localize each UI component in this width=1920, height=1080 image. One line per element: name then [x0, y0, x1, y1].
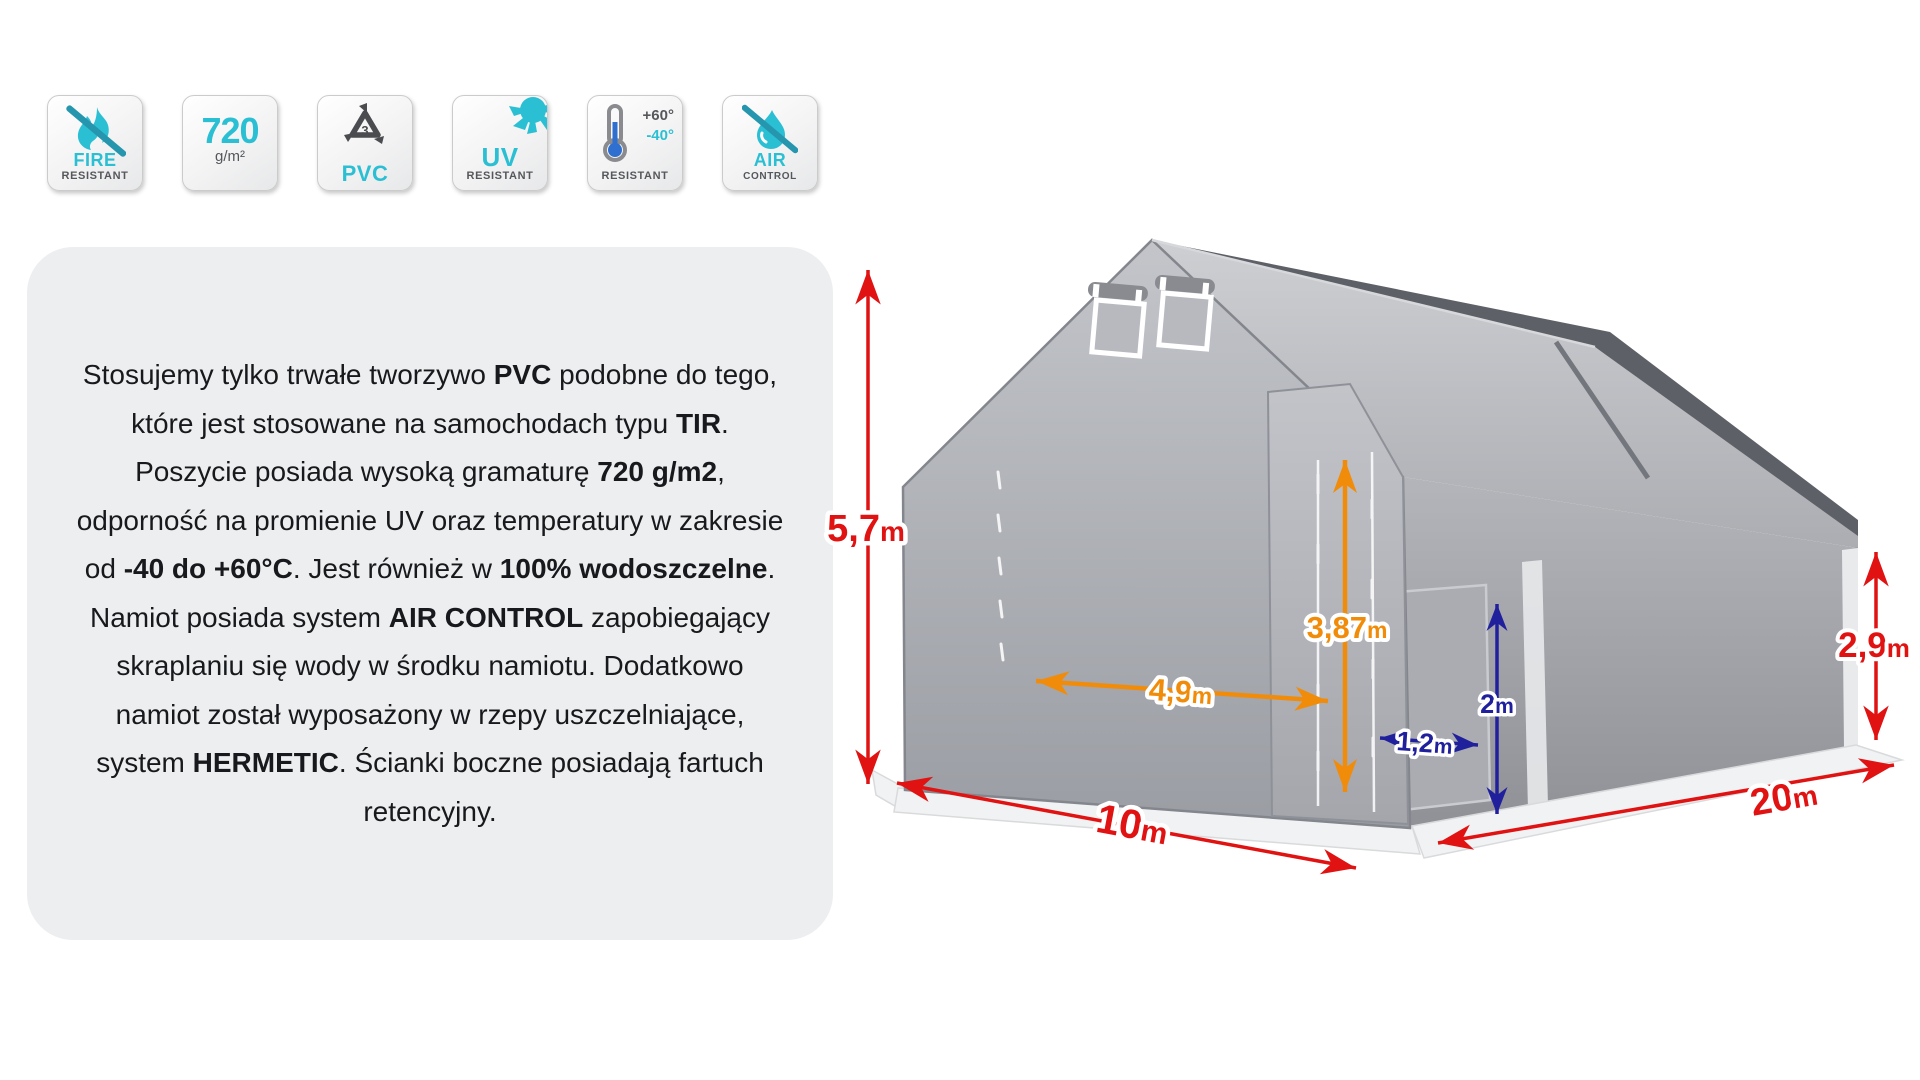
label-front-height: 5,7m	[827, 508, 905, 550]
tent-illustration	[872, 240, 1902, 858]
tent-front-gate	[1268, 384, 1408, 824]
label-side-wall-height: 2,9m	[1838, 626, 1910, 665]
tent-window-right	[1154, 274, 1215, 349]
page: FIRE RESISTANT 720 g/m² 3 PVC	[0, 0, 1920, 1080]
tent-diagram: 5,7m 3,87m 4,9m 2m 1,2m 2,9m 10m 20m	[0, 0, 1920, 1080]
tent-window-left	[1087, 281, 1148, 356]
